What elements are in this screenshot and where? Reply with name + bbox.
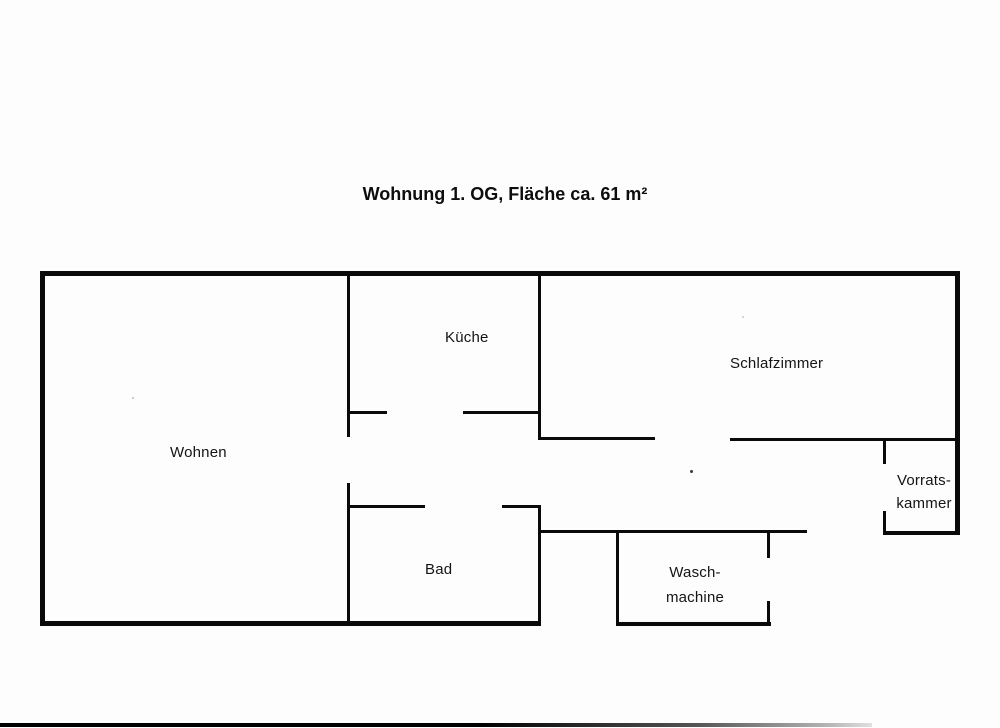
scan-speck [690,470,693,473]
wall-outer-left [40,271,45,626]
plan-title: Wohnung 1. OG, Fläche ca. 61 m² [363,184,648,205]
wall-schlafzimmer-bottom-left [538,437,655,440]
scan-speck [742,316,744,318]
wall-waschmachine-bottom [616,622,771,626]
wall-kueche-right [538,274,541,440]
room-label-vorratskammer-line1: Vorrats- [897,472,951,489]
wall-waschmachine-right-bottom [767,601,770,626]
wall-bad-right [538,505,541,626]
wall-outer-bottom [40,621,540,626]
room-label-schlafzimmer: Schlafzimmer [730,355,823,372]
floor-plan-page: Wohnung 1. OG, Fläche ca. 61 m² Wohnen K… [0,0,1000,728]
wall-bad-top-right [502,505,541,508]
wall-waschmachine-right-top [767,533,770,558]
room-label-waschmachine: Wasch- machine [645,560,745,610]
scan-speck [132,397,134,399]
room-label-bad: Bad [425,561,452,578]
wall-outer-top [40,271,960,276]
room-label-waschmachine-line2: machine [666,589,724,606]
wall-vorratskammer-bottom [883,531,960,535]
room-label-kueche: Küche [445,329,489,346]
wall-waschmachine-left [616,532,619,626]
room-label-vorratskammer: Vorrats- kammer [884,469,964,515]
wall-kueche-bottom-left [347,411,387,414]
room-label-wohnen: Wohnen [170,444,227,461]
wall-bad-top-left [347,505,425,508]
wall-schlafzimmer-bottom-right [730,438,957,441]
wall-vorratskammer-left-top [883,441,886,464]
room-label-waschmachine-line1: Wasch- [669,564,720,581]
room-label-vorratskammer-line2: kammer [896,495,951,512]
scan-edge-artifact [0,723,872,727]
wall-kueche-bottom-right [463,411,541,414]
